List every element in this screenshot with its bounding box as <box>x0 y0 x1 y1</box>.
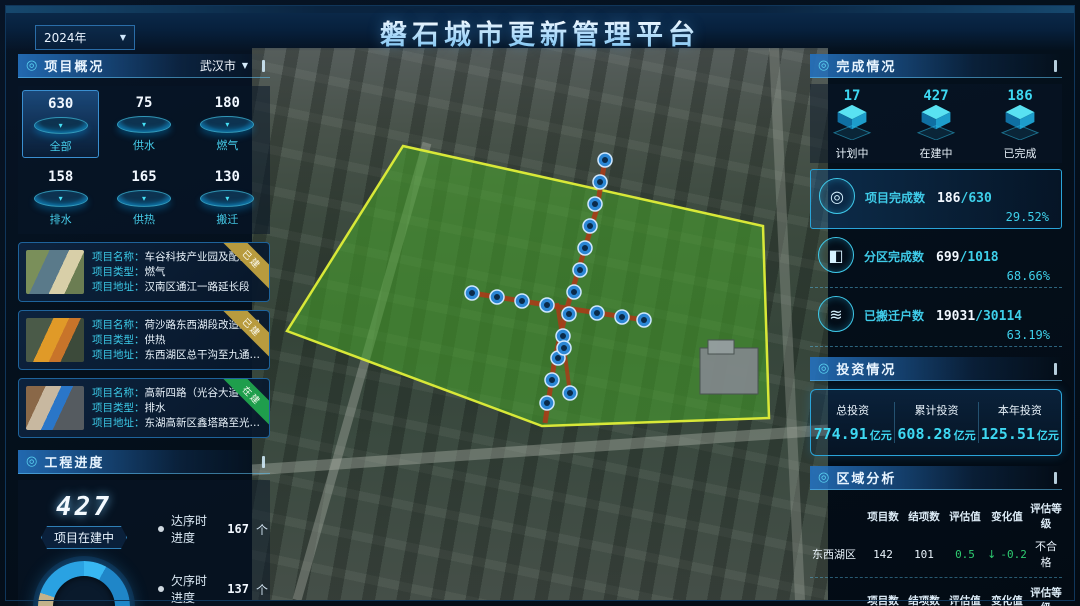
project-address: 汉南区通江一路延长段 <box>145 280 250 294</box>
target-icon: ◎ <box>819 178 855 214</box>
region-analysis-table: 项目数 结项数 评估值 变化值 评估等级 东西湖区 142 101 0.5 ↓ … <box>810 494 1062 606</box>
stat-label: 供热 <box>105 211 182 227</box>
section-header-overview: ◎ 项目概况 武汉市 ▼ <box>18 54 270 78</box>
header-accent-bar <box>262 60 265 72</box>
page-title: 磐石城市更新管理平台 <box>5 13 1075 52</box>
region-header-row: 项目数 结项数 评估值 变化值 评估等级 <box>810 578 1062 606</box>
platform-disc-icon: ▾ <box>34 117 88 134</box>
target-icon: ◎ <box>818 471 829 484</box>
legend-dot <box>158 526 164 532</box>
partition-icon: ◧ <box>818 237 854 273</box>
row-label: 分区完成数 <box>864 248 924 265</box>
legend-dot <box>158 586 164 592</box>
layers-icon: ≋ <box>818 296 854 332</box>
app-header: 磐石城市更新管理平台 2024年 ▼ <box>5 5 1075 51</box>
region-header-row: 项目数 结项数 评估值 变化值 评估等级 <box>810 494 1062 534</box>
stat-value: 165 <box>105 169 182 185</box>
completion-stat-building: 427 在建中 <box>894 88 978 161</box>
section-header-investment: ◎ 投资情况 <box>810 357 1062 381</box>
project-type: 供热 <box>145 333 166 347</box>
project-thumbnail <box>26 250 84 294</box>
stat-label: 在建中 <box>894 145 978 161</box>
section-title: 投资情况 <box>836 359 896 378</box>
project-stats-grid: 630 ▾ 全部 75 ▾ 供水 180 ▾ 燃气 158 ▾ 排水 165 ▾ <box>18 86 270 234</box>
col-header: 评估值 <box>946 586 984 606</box>
row-percent: 29.52% <box>1006 210 1049 224</box>
city-dropdown-value: 武汉市 <box>200 57 236 74</box>
stat-value: 180 <box>189 95 266 111</box>
region-group: 项目数 结项数 评估值 变化值 评估等级 经开区 117 109 0.85 ↑ … <box>810 578 1062 606</box>
investment-value: 774.91 <box>814 425 868 443</box>
investment-this-year: 本年投资 125.51亿元 <box>978 402 1061 443</box>
completion-stat-done: 186 已完成 <box>978 88 1062 161</box>
target-icon: ◎ <box>26 455 37 468</box>
target-icon: ◎ <box>818 362 829 375</box>
investment-label: 本年投资 <box>979 402 1061 418</box>
district-name: 东西湖区 <box>810 542 864 569</box>
stat-tile-gas[interactable]: 180 ▾ 燃气 <box>189 90 266 158</box>
city-map[interactable] <box>252 48 828 600</box>
closed-count: 101 <box>902 544 946 568</box>
stat-label: 搬迁 <box>189 211 266 227</box>
year-dropdown[interactable]: 2024年 ▼ <box>35 25 135 50</box>
trend-arrow-icon: ↓ <box>987 548 996 561</box>
chevron-down-icon: ▼ <box>120 33 126 42</box>
cube-icon <box>913 104 959 140</box>
completion-stats-row: 17 计划中 427 在建中 1 <box>810 84 1062 163</box>
project-address: 东西湖区总干沟至九通路段 <box>145 348 263 362</box>
stat-tile-water[interactable]: 75 ▾ 供水 <box>105 90 182 158</box>
stat-value: 75 <box>105 95 182 111</box>
completion-row-partitions: ◧ 分区完成数 699/1018 68.66% <box>810 229 1062 288</box>
section-title: 工程进度 <box>44 452 104 471</box>
target-icon: ◎ <box>818 59 829 72</box>
project-card[interactable]: 项目名称：荷沙路东西湖段改造工程 项目类型：供热 项目地址：东西湖区总干沟至九通… <box>18 310 270 370</box>
cube-icon <box>829 104 875 140</box>
region-group: 项目数 结项数 评估值 变化值 评估等级 东西湖区 142 101 0.5 ↓ … <box>810 494 1062 578</box>
project-thumbnail <box>26 386 84 430</box>
chevron-down-icon: ▼ <box>242 61 248 70</box>
legend-label: 欠序时进度 <box>171 572 216 606</box>
building-model <box>700 340 758 394</box>
platform-disc-icon: ▾ <box>200 116 254 133</box>
field-label: 项目类型： <box>92 333 145 347</box>
legend-label: 达序时进度 <box>171 512 216 546</box>
stat-value: 186 <box>978 88 1062 104</box>
row-percent: 68.66% <box>1007 269 1050 283</box>
section-title: 项目概况 <box>44 56 104 75</box>
col-header: 变化值 <box>984 502 1030 527</box>
field-label: 项目地址： <box>92 416 145 430</box>
platform-disc-icon: ▾ <box>117 190 171 207</box>
platform-disc-icon: ▾ <box>117 116 171 133</box>
year-dropdown-value: 2024年 <box>44 29 87 46</box>
legend-row: 欠序时进度 137 个 <box>158 572 268 606</box>
investment-value: 608.28 <box>897 425 951 443</box>
map-overlay-layer <box>252 48 828 600</box>
col-header: 结项数 <box>902 502 946 527</box>
stat-tile-drainage[interactable]: 158 ▾ 排水 <box>22 164 99 230</box>
field-label: 项目类型： <box>92 265 145 279</box>
stat-value: 630 <box>23 96 98 112</box>
field-label: 项目名称： <box>92 318 145 332</box>
platform-disc-icon: ▾ <box>200 190 254 207</box>
stat-tile-relocation[interactable]: 130 ▾ 搬迁 <box>189 164 266 230</box>
cube-icon <box>997 104 1043 140</box>
in-construction-label: 项目在建中 <box>41 526 127 549</box>
col-header: 评估等级 <box>1030 578 1062 606</box>
project-card[interactable]: 项目名称：车谷科技产业园及配套基础设... 项目类型：燃气 项目地址：汉南区通江… <box>18 242 270 302</box>
completion-row-projects: ◎ 项目完成数 186/630 29.52% <box>810 169 1062 229</box>
row-label: 已搬迁户数 <box>864 307 924 324</box>
investment-label: 总投资 <box>811 402 894 418</box>
investment-total: 总投资 774.91亿元 <box>811 402 894 443</box>
city-dropdown[interactable]: 武汉市 ▼ <box>200 57 248 74</box>
col-header: 评估等级 <box>1030 494 1062 534</box>
legend-value: 167 <box>227 522 249 536</box>
stat-label: 燃气 <box>189 137 266 153</box>
section-header-region: ◎ 区域分析 <box>810 466 1062 490</box>
row-total: /630 <box>961 191 992 206</box>
change-cell: ↓ -0.2 <box>984 544 1030 568</box>
stat-value: 158 <box>22 169 99 185</box>
project-card[interactable]: 项目名称：高新四路（光谷大道-光谷八路... 项目类型：排水 项目地址：东湖高新… <box>18 378 270 438</box>
project-type: 排水 <box>145 401 166 415</box>
project-count: 142 <box>864 544 902 568</box>
investment-label: 累计投资 <box>895 402 977 418</box>
field-label: 项目地址： <box>92 348 145 362</box>
stat-label: 供水 <box>105 137 182 153</box>
project-type: 燃气 <box>145 265 166 279</box>
in-construction-count: 427 <box>20 492 148 522</box>
section-title: 完成情况 <box>836 56 896 75</box>
col-header: 评估值 <box>946 502 984 527</box>
row-value: 19031 <box>936 309 975 324</box>
col-header: 结项数 <box>902 586 946 606</box>
legend-unit: 个 <box>256 581 268 598</box>
project-address: 东湖高新区鑫塔路至光谷八路 <box>145 416 263 430</box>
field-label: 项目名称： <box>92 386 145 400</box>
section-title: 区域分析 <box>836 468 896 487</box>
row-value: 699 <box>936 250 959 265</box>
investment-summary-box: 总投资 774.91亿元 累计投资 608.28亿元 本年投资 125.51亿元 <box>810 389 1062 456</box>
change-value: -0.2 <box>1000 548 1027 561</box>
section-header-progress: ◎ 工程进度 <box>18 450 270 474</box>
stat-tile-heating[interactable]: 165 ▾ 供热 <box>105 164 182 230</box>
header-accent-bar <box>1054 60 1057 72</box>
field-label: 项目地址： <box>92 280 145 294</box>
row-percent: 63.19% <box>1007 328 1050 342</box>
legend-row: 达序时进度 167 个 <box>158 512 268 546</box>
row-total: /1018 <box>960 250 999 265</box>
stat-label: 全部 <box>23 138 98 154</box>
investment-cumulative: 累计投资 608.28亿元 <box>894 402 977 443</box>
stat-value: 130 <box>189 169 266 185</box>
stat-label: 已完成 <box>978 145 1062 161</box>
project-thumbnail <box>26 318 84 362</box>
stat-value: 427 <box>894 88 978 104</box>
completion-row-households: ≋ 已搬迁户数 19031/30114 63.19% <box>810 288 1062 347</box>
left-panel: ◎ 项目概况 武汉市 ▼ 630 ▾ 全部 75 ▾ 供水 180 ▾ 燃气 <box>18 54 270 606</box>
field-label: 项目名称： <box>92 250 145 264</box>
region-data-row: 东西湖区 142 101 0.5 ↓ -0.2 不合格 <box>810 534 1062 577</box>
legend-unit: 个 <box>256 521 268 538</box>
right-panel: ◎ 完成情况 17 计划中 427 <box>810 54 1062 606</box>
field-label: 项目类型： <box>92 401 145 415</box>
completion-stat-planned: 17 计划中 <box>810 88 894 161</box>
stat-value: 17 <box>810 88 894 104</box>
stat-tile-all[interactable]: 630 ▾ 全部 <box>22 90 99 158</box>
section-header-completion: ◎ 完成情况 <box>810 54 1062 78</box>
target-icon: ◎ <box>26 59 37 72</box>
row-value: 186 <box>937 191 960 206</box>
row-total: /30114 <box>975 309 1022 324</box>
header-accent-bar <box>1054 472 1057 484</box>
col-header: 项目数 <box>864 586 902 606</box>
row-label: 项目完成数 <box>865 189 925 206</box>
progress-body: 427 项目在建中 达序时进度 167 个 欠序时进度 137 个 <box>18 480 270 606</box>
progress-donut-chart <box>38 561 130 606</box>
grade-label: 不合格 <box>1030 534 1062 577</box>
stat-label: 排水 <box>22 211 99 227</box>
investment-unit: 亿元 <box>1037 429 1059 442</box>
header-accent-bar <box>1054 363 1057 375</box>
investment-unit: 亿元 <box>954 429 976 442</box>
score-value: 0.5 <box>946 544 984 568</box>
stat-label: 计划中 <box>810 145 894 161</box>
legend-value: 137 <box>227 582 249 596</box>
col-header: 项目数 <box>864 502 902 527</box>
investment-unit: 亿元 <box>870 429 892 442</box>
road-line <box>774 48 800 600</box>
dashboard: 磐石城市更新管理平台 2024年 ▼ ◎ 项目概况 武汉市 ▼ 630 ▾ 全部… <box>0 0 1080 606</box>
header-accent-bar <box>262 456 265 468</box>
investment-value: 125.51 <box>981 425 1035 443</box>
platform-disc-icon: ▾ <box>34 190 88 207</box>
col-header: 变化值 <box>984 586 1030 606</box>
